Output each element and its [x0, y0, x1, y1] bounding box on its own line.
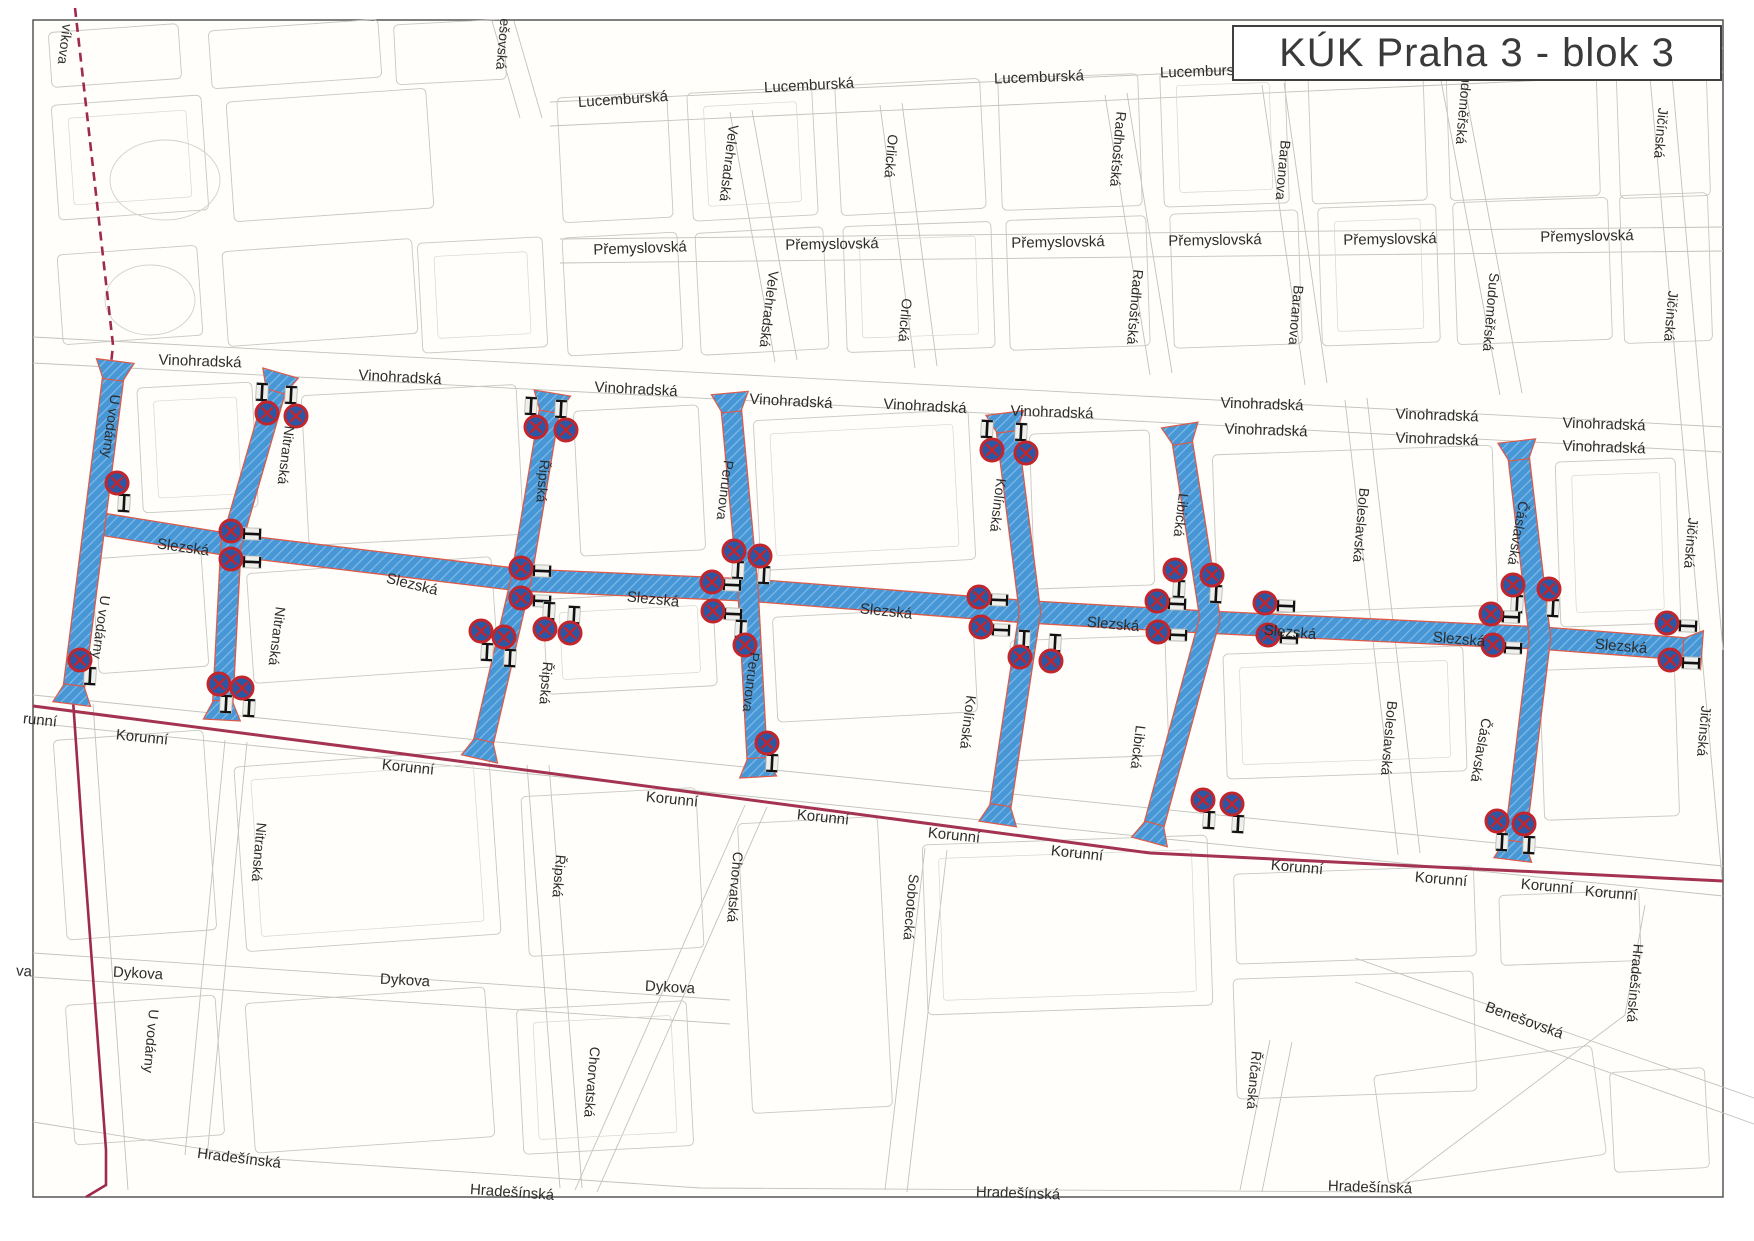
street-label: Vinohradská	[1562, 415, 1646, 435]
street-label: Vinohradská	[1224, 421, 1308, 441]
sign-post-icon	[1232, 815, 1245, 834]
map-title: KÚK Praha 3 - blok 3	[1279, 31, 1675, 76]
map-title-box: KÚK Praha 3 - blok 3	[1232, 25, 1722, 81]
street-label: Vinohradská	[1220, 395, 1304, 415]
no-stopping-sign-icon	[749, 545, 771, 567]
sign-post-icon	[1277, 600, 1295, 613]
no-stopping-sign-icon	[1480, 603, 1502, 625]
sign-post-icon	[243, 528, 261, 541]
sign-post-icon	[1015, 423, 1028, 442]
map-page: LucemburskáLucemburskáLucemburskáLucembu…	[0, 0, 1754, 1241]
no-stopping-sign-icon	[555, 419, 577, 441]
street-label: va	[16, 963, 33, 981]
sign-post-icon	[1203, 811, 1216, 830]
street-label: Hradešínská	[1328, 1178, 1413, 1198]
no-stopping-sign-icon	[208, 673, 230, 695]
street-label: Přemyslovská	[1540, 227, 1634, 246]
street-label: Dykova	[645, 978, 696, 998]
sign-post-icon	[1523, 836, 1536, 855]
no-stopping-sign-icon	[1009, 646, 1031, 668]
no-stopping-sign-icon	[1146, 590, 1168, 612]
sign-post-icon	[285, 386, 298, 405]
sign-post-icon	[1496, 833, 1509, 852]
no-stopping-sign-icon	[510, 587, 532, 609]
no-stopping-sign-icon	[1192, 789, 1214, 811]
street-label: Přemyslovská	[1343, 230, 1437, 249]
sign-post-icon	[723, 579, 741, 592]
no-stopping-sign-icon	[69, 649, 91, 671]
street-label: Vinohradská	[1395, 406, 1479, 426]
no-stopping-sign-icon	[1201, 564, 1223, 586]
street-label: Lucemburská	[994, 67, 1085, 87]
sign-post-icon	[990, 594, 1008, 607]
sign-post-icon	[243, 699, 256, 718]
street-label: Vinohradská	[158, 352, 242, 372]
sign-post-icon	[256, 383, 269, 402]
no-stopping-sign-icon	[559, 622, 581, 644]
sign-post-icon	[724, 608, 742, 621]
no-stopping-sign-icon	[510, 557, 532, 579]
no-stopping-sign-icon	[525, 416, 547, 438]
no-stopping-sign-icon	[1221, 793, 1243, 815]
sign-post-icon	[1502, 611, 1520, 624]
sign-post-icon	[243, 556, 261, 569]
no-stopping-sign-icon	[220, 520, 242, 542]
street-label: Přemyslovská	[1011, 233, 1105, 252]
sign-post-icon	[766, 754, 779, 773]
sign-post-icon	[1679, 620, 1697, 633]
no-stopping-sign-icon	[220, 548, 242, 570]
city-map-canvas: LucemburskáLucemburskáLucemburskáLucembu…	[0, 0, 1754, 1241]
street-label: Přemyslovská	[1168, 231, 1262, 250]
sign-post-icon	[1682, 657, 1700, 670]
street-label: Vinohradská	[1562, 438, 1646, 458]
no-stopping-sign-icon	[701, 571, 723, 593]
sign-post-icon	[220, 695, 233, 714]
sign-post-icon	[481, 643, 494, 662]
sign-post-icon	[1169, 629, 1187, 642]
street-label: Dykova	[113, 964, 164, 984]
sign-post-icon	[1168, 598, 1186, 611]
sign-post-icon	[504, 649, 517, 668]
no-stopping-sign-icon	[285, 405, 307, 427]
no-stopping-sign-icon	[970, 616, 992, 638]
no-stopping-sign-icon	[723, 540, 745, 562]
street-label: Vinohradská	[1395, 430, 1479, 450]
no-stopping-sign-icon	[968, 586, 990, 608]
sign-post-icon	[555, 400, 568, 419]
street-label: Přemyslovská	[593, 238, 688, 258]
no-stopping-sign-icon	[702, 600, 724, 622]
sign-post-icon	[992, 624, 1010, 637]
street-label: Dykova	[380, 971, 431, 991]
no-stopping-sign-icon	[1513, 813, 1535, 835]
sign-post-icon	[1504, 642, 1522, 655]
street-label: Vinohradská	[1010, 403, 1094, 423]
street-label: runní	[22, 710, 59, 731]
street-label: Hradešínská	[976, 1184, 1061, 1204]
no-stopping-sign-icon	[493, 626, 515, 648]
no-stopping-sign-icon	[256, 402, 278, 424]
no-stopping-sign-icon	[106, 472, 128, 494]
no-stopping-sign-icon	[1656, 612, 1678, 634]
street-label: Přemyslovská	[785, 235, 879, 254]
no-stopping-sign-icon	[534, 618, 556, 640]
no-stopping-sign-icon	[1659, 649, 1681, 671]
no-stopping-sign-icon	[1015, 442, 1037, 464]
no-stopping-sign-icon	[1164, 559, 1186, 581]
no-stopping-sign-icon	[231, 677, 253, 699]
sign-post-icon	[981, 420, 994, 439]
no-stopping-sign-icon	[1254, 592, 1276, 614]
no-stopping-sign-icon	[1502, 574, 1524, 596]
sign-post-icon	[118, 494, 131, 513]
no-stopping-sign-icon	[470, 620, 492, 642]
no-stopping-sign-icon	[1147, 621, 1169, 643]
no-stopping-sign-icon	[1040, 650, 1062, 672]
sign-post-icon	[525, 397, 538, 416]
no-stopping-sign-icon	[756, 732, 778, 754]
no-stopping-sign-icon	[1538, 578, 1560, 600]
no-stopping-sign-icon	[1486, 810, 1508, 832]
sign-post-icon	[533, 565, 551, 578]
no-stopping-sign-icon	[981, 439, 1003, 461]
